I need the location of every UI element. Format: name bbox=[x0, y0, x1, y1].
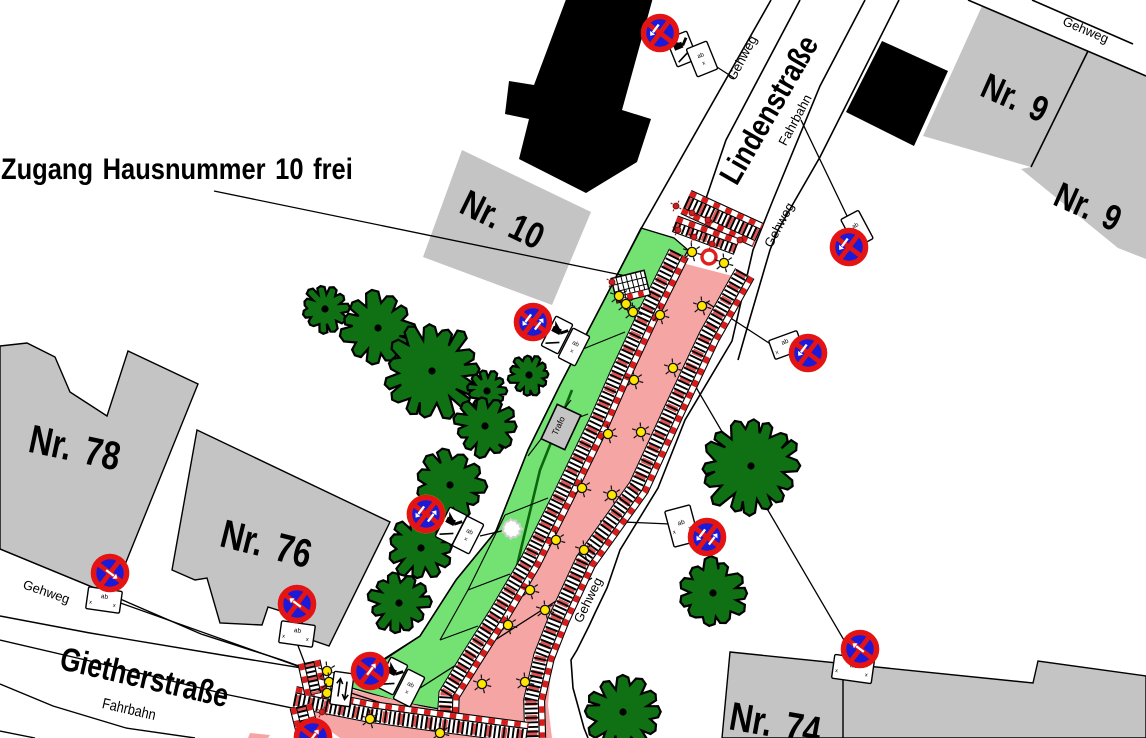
svg-text:Gehweg: Gehweg bbox=[1061, 13, 1111, 46]
svg-text:Gehweg: Gehweg bbox=[761, 200, 797, 250]
svg-text:Gehweg: Gehweg bbox=[724, 33, 760, 83]
svg-text:Zugang Hausnummer 10 frei: Zugang Hausnummer 10 frei bbox=[1, 152, 353, 185]
svg-text:Gehweg: Gehweg bbox=[21, 577, 72, 607]
svg-text:ab: ab bbox=[100, 593, 109, 601]
svg-text:ab: ab bbox=[293, 627, 302, 635]
svg-text:Fahrbahn: Fahrbahn bbox=[101, 694, 158, 723]
svg-text:Lindenstraße: Lindenstraße bbox=[713, 30, 826, 190]
